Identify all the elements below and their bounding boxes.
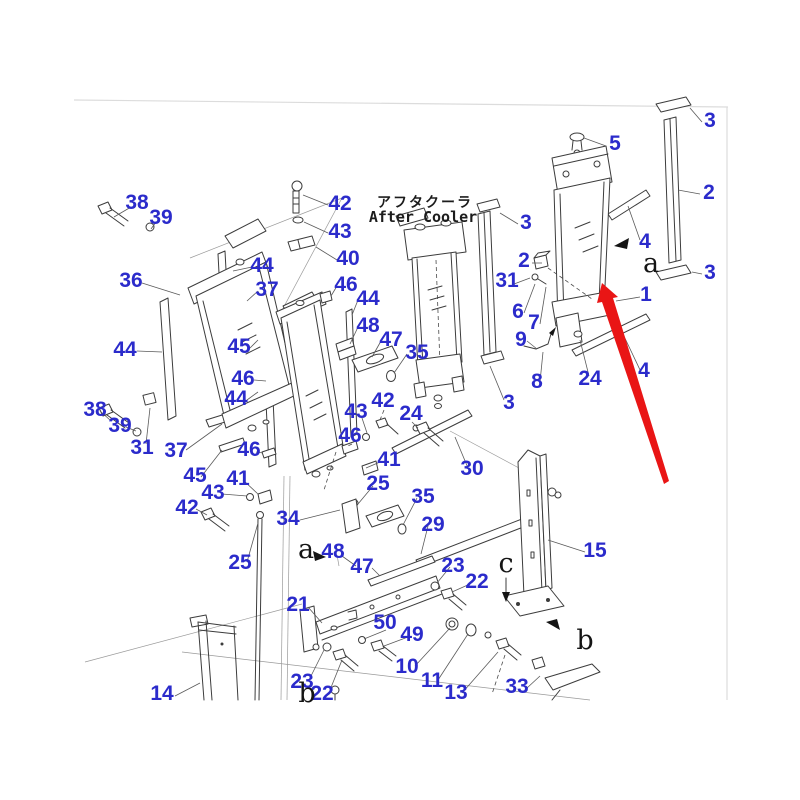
parts-diagram-page: アフタクーラ After Cooler 38394243404436374644…: [0, 0, 800, 800]
part-number-label: 13: [444, 681, 467, 704]
part-number-label: 44: [224, 387, 248, 410]
view-letter: c: [498, 548, 513, 579]
part-number-label: 8: [531, 370, 543, 393]
part-number-label: 21: [286, 593, 310, 616]
part-number-label: 35: [411, 485, 435, 508]
part-number-label: 5: [609, 132, 621, 155]
part-number-label: 49: [400, 623, 423, 646]
part-number-label: 42: [371, 389, 394, 412]
part-number-label: 46: [338, 424, 361, 447]
part-number-label: 10: [395, 655, 418, 678]
part-number-label: 1: [640, 283, 652, 306]
view-letter: b: [576, 625, 593, 656]
part-number-label: 45: [227, 335, 251, 358]
part-number-label: 48: [356, 314, 380, 337]
part-number-label: 23: [441, 554, 464, 577]
part-number-label: 37: [164, 439, 187, 462]
title-english: After Cooler: [369, 208, 477, 226]
part-number-label: 24: [399, 402, 423, 425]
part-number-label: 38: [125, 191, 149, 214]
part-number-label: 3: [704, 109, 716, 132]
part-number-label: 11: [421, 669, 444, 692]
part-number-label: 41: [377, 448, 401, 471]
part-number-label: 24: [578, 367, 602, 390]
part-number-label: 41: [226, 467, 250, 490]
part-number-label: 7: [528, 311, 540, 334]
part-number-label: 9: [515, 328, 527, 351]
part-number-label: 3: [503, 391, 515, 414]
part-number-label: 47: [379, 328, 402, 351]
part-number-label: 31: [495, 269, 519, 292]
part-number-label: 39: [108, 414, 131, 437]
part-number-label: 46: [334, 273, 357, 296]
highlight-arrow: [597, 283, 669, 484]
part-number-label: 47: [350, 555, 373, 578]
part-number-label: 48: [321, 540, 345, 563]
part-number-label: 31: [130, 436, 154, 459]
part-number-label: 15: [583, 539, 607, 562]
main-cooler-1-drawing: [548, 133, 612, 347]
part-number-label: 29: [421, 513, 444, 536]
part-number-label: 35: [405, 341, 429, 364]
part-number-label: 38: [83, 398, 107, 421]
part-number-label: 44: [113, 338, 137, 361]
part-number-label: 25: [366, 472, 390, 495]
part-number-label: 2: [518, 249, 530, 272]
part-number-label: 30: [460, 457, 483, 480]
view-letter: a: [298, 534, 314, 565]
part-number-label: 43: [328, 220, 351, 243]
stand-15-drawing: [504, 450, 564, 616]
part-number-label: 44: [250, 254, 274, 277]
part-number-label: 37: [255, 278, 278, 301]
view-letter: b: [298, 678, 315, 709]
part-number-label: 22: [465, 570, 488, 593]
part-number-label: 43: [344, 400, 367, 423]
view-letter: a: [643, 248, 659, 279]
part-number-label: 2: [703, 181, 715, 204]
part-number-label: 14: [150, 682, 174, 705]
part-number-label: 50: [373, 611, 396, 634]
aftercooler-drawing: [396, 208, 466, 401]
part-number-label: 44: [356, 287, 380, 310]
part-number-label: 3: [520, 211, 532, 234]
part-number-label: 42: [175, 496, 198, 519]
exploded-parts-diagram: アフタクーラ After Cooler 38394243404436374644…: [0, 0, 800, 800]
part-number-label: 40: [336, 247, 359, 270]
part-number-label: 3: [704, 261, 716, 284]
part-number-label: 25: [228, 551, 252, 574]
part-number-label: 4: [638, 359, 650, 382]
part-number-label: 6: [512, 300, 524, 323]
part-number-label: 46: [237, 438, 260, 461]
part-number-label: 36: [119, 269, 142, 292]
part-number-label: 43: [201, 481, 224, 504]
part-number-label: 34: [276, 507, 300, 530]
part-number-label: 39: [149, 206, 172, 229]
part-number-label: 42: [328, 192, 351, 215]
part-number-label: 33: [505, 675, 528, 698]
